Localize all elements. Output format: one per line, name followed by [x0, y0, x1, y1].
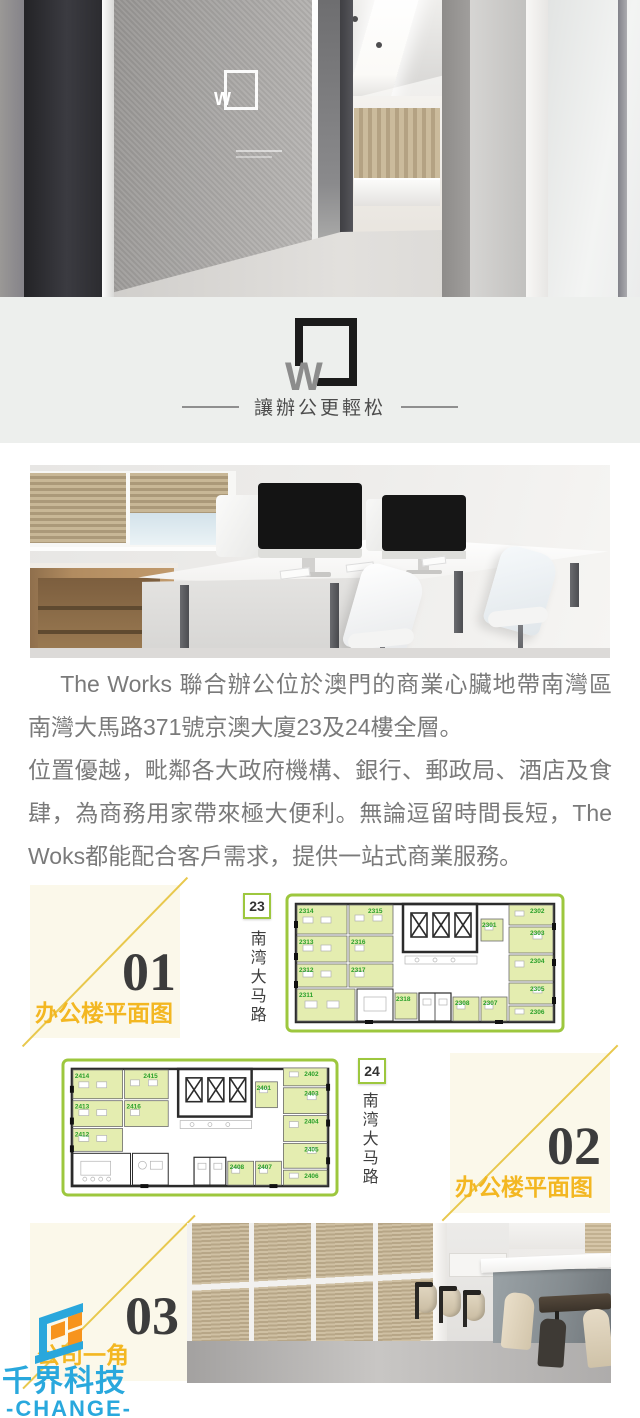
- cabinet-shelf: [38, 630, 160, 634]
- glass-reflection: [318, 0, 340, 262]
- section-01-title: 办公楼平面图: [35, 994, 173, 1028]
- imac-screen: [258, 483, 362, 549]
- stool-base: [415, 1282, 433, 1287]
- room-label: 2407: [258, 1164, 273, 1171]
- section-02-number: 02: [547, 1119, 601, 1173]
- office-chair: [492, 549, 582, 658]
- room-label: 2405: [304, 1146, 319, 1153]
- intro-paragraph-2: 位置優越，毗鄰各大政府機構、銀行、郵政局、酒店及食肆，為商務用家帶來極大便利。無…: [28, 749, 612, 878]
- section-01-number: 01: [122, 945, 176, 999]
- pillar: [470, 0, 526, 297]
- room-label: 2303: [530, 930, 545, 937]
- room-label: 2401: [257, 1085, 272, 1092]
- spotlight: [376, 42, 382, 48]
- floor-23-badge: 23: [243, 893, 271, 919]
- page: W W 讓辦公更輕松: [0, 0, 640, 1418]
- room-label: 2307: [483, 1000, 498, 1007]
- wall-signage-line: [236, 156, 272, 158]
- room-label: 2302: [530, 908, 545, 915]
- floor-plan-24: 2414 2415 2413 2416 2412 2401 2402 2403 …: [60, 1058, 340, 1197]
- street-label-24: 南湾大马路: [359, 1092, 377, 1187]
- imac-chin: [258, 549, 362, 558]
- office-floor: [30, 648, 610, 658]
- pillar-highlight: [526, 0, 548, 297]
- room-label: 2311: [299, 992, 313, 999]
- bar-stool: [439, 1287, 463, 1363]
- wood-slat-wall: [354, 108, 440, 178]
- tagline-text: 讓辦公更輕松: [254, 393, 386, 420]
- wall-logo-letter: W: [214, 90, 231, 108]
- watermark-company-name: 千界科技: [2, 1367, 126, 1397]
- intro-paragraph-1: The Works 聯合辦公位於澳門的商業心臟地帶南灣區南灣大馬路371號京澳大…: [28, 663, 612, 749]
- room-label: 2301: [482, 922, 497, 929]
- room-label: 2305: [530, 986, 545, 993]
- room-label: 2316: [351, 939, 366, 946]
- brand-band: W 讓辦公更輕松: [0, 297, 640, 443]
- dark-bench: [537, 1318, 566, 1368]
- stool-base: [463, 1290, 481, 1295]
- window-blind: [30, 473, 130, 543]
- left-wall: [0, 0, 24, 297]
- section-02-title: 办公楼平面图: [455, 1168, 593, 1202]
- cabinet-interior: [38, 578, 160, 650]
- glass-seam: [618, 0, 627, 297]
- tagline-rule-left: [182, 406, 239, 408]
- office-chair: [352, 567, 442, 658]
- room-label: 2314: [299, 908, 314, 915]
- bench-seat: [582, 1308, 611, 1368]
- imac-screen: [382, 495, 466, 551]
- cafe-photo: [187, 1223, 611, 1383]
- room-label: 2404: [304, 1119, 319, 1126]
- section-01-panel: 01 办公楼平面图: [30, 885, 180, 1038]
- dark-door: [24, 0, 105, 297]
- stool-pole: [439, 1287, 443, 1323]
- room-label: 2304: [530, 958, 545, 965]
- desk-leg: [454, 571, 463, 633]
- stool-pole: [415, 1283, 419, 1319]
- bar-stool: [415, 1283, 439, 1359]
- room-label: 2403: [304, 1091, 319, 1098]
- room-label: 2415: [143, 1073, 158, 1080]
- reception-counter: [354, 178, 440, 206]
- desk-leg: [330, 583, 339, 658]
- door-trim: [102, 0, 114, 297]
- street-label-23: 南湾大马路: [247, 930, 265, 1025]
- room-label: 2412: [75, 1131, 90, 1138]
- room-label: 2408: [230, 1164, 245, 1171]
- intro-text: The Works 聯合辦公位於澳門的商業心臟地帶南灣區南灣大馬路371號京澳大…: [28, 663, 612, 878]
- room-label: 2306: [530, 1009, 545, 1016]
- section-03-number: 03: [125, 1289, 179, 1343]
- wall-signage-line: [236, 150, 282, 152]
- room-label: 2402: [304, 1071, 319, 1078]
- floor-24-badge: 24: [358, 1058, 386, 1084]
- stool-base: [439, 1286, 457, 1291]
- bench-seat: [501, 1292, 536, 1350]
- w-logo-icon: W: [284, 309, 362, 395]
- cabinet-shelf: [38, 606, 160, 610]
- logo-letter: W: [285, 355, 323, 395]
- window-sill: [30, 547, 232, 551]
- stool-pole: [463, 1291, 467, 1327]
- section-02-panel: 02 办公楼平面图: [450, 1053, 610, 1213]
- room-label: 2312: [299, 967, 314, 974]
- room-label: 2406: [304, 1173, 319, 1180]
- room-label: 2416: [127, 1104, 142, 1111]
- office-photo: [30, 465, 610, 658]
- watermark-brand-name: -CHANGE-: [6, 1398, 132, 1418]
- window-blind: [130, 473, 228, 513]
- room-label: 2414: [75, 1073, 90, 1080]
- window-glass: [130, 513, 228, 545]
- corridor-photo: W: [0, 0, 640, 297]
- wood-blind-corner: [585, 1223, 611, 1253]
- room-label: 2317: [351, 967, 366, 974]
- room-label: 2313: [299, 939, 314, 946]
- wall-column: [442, 0, 470, 297]
- tagline-rule-right: [401, 406, 458, 408]
- change-logo-icon: [33, 1300, 89, 1366]
- room-label: 2413: [75, 1104, 90, 1111]
- floor-plan-23: 2314 2315 2313 2316 2312 2317 2311 2318 …: [285, 893, 565, 1033]
- tagline-row: 讓辦公更輕松: [0, 393, 640, 420]
- door-frame: [340, 0, 353, 252]
- room-label: 2315: [368, 908, 383, 915]
- bar-stool: [463, 1291, 487, 1367]
- room-label: 2318: [396, 996, 411, 1003]
- room-label: 2308: [455, 1000, 470, 1007]
